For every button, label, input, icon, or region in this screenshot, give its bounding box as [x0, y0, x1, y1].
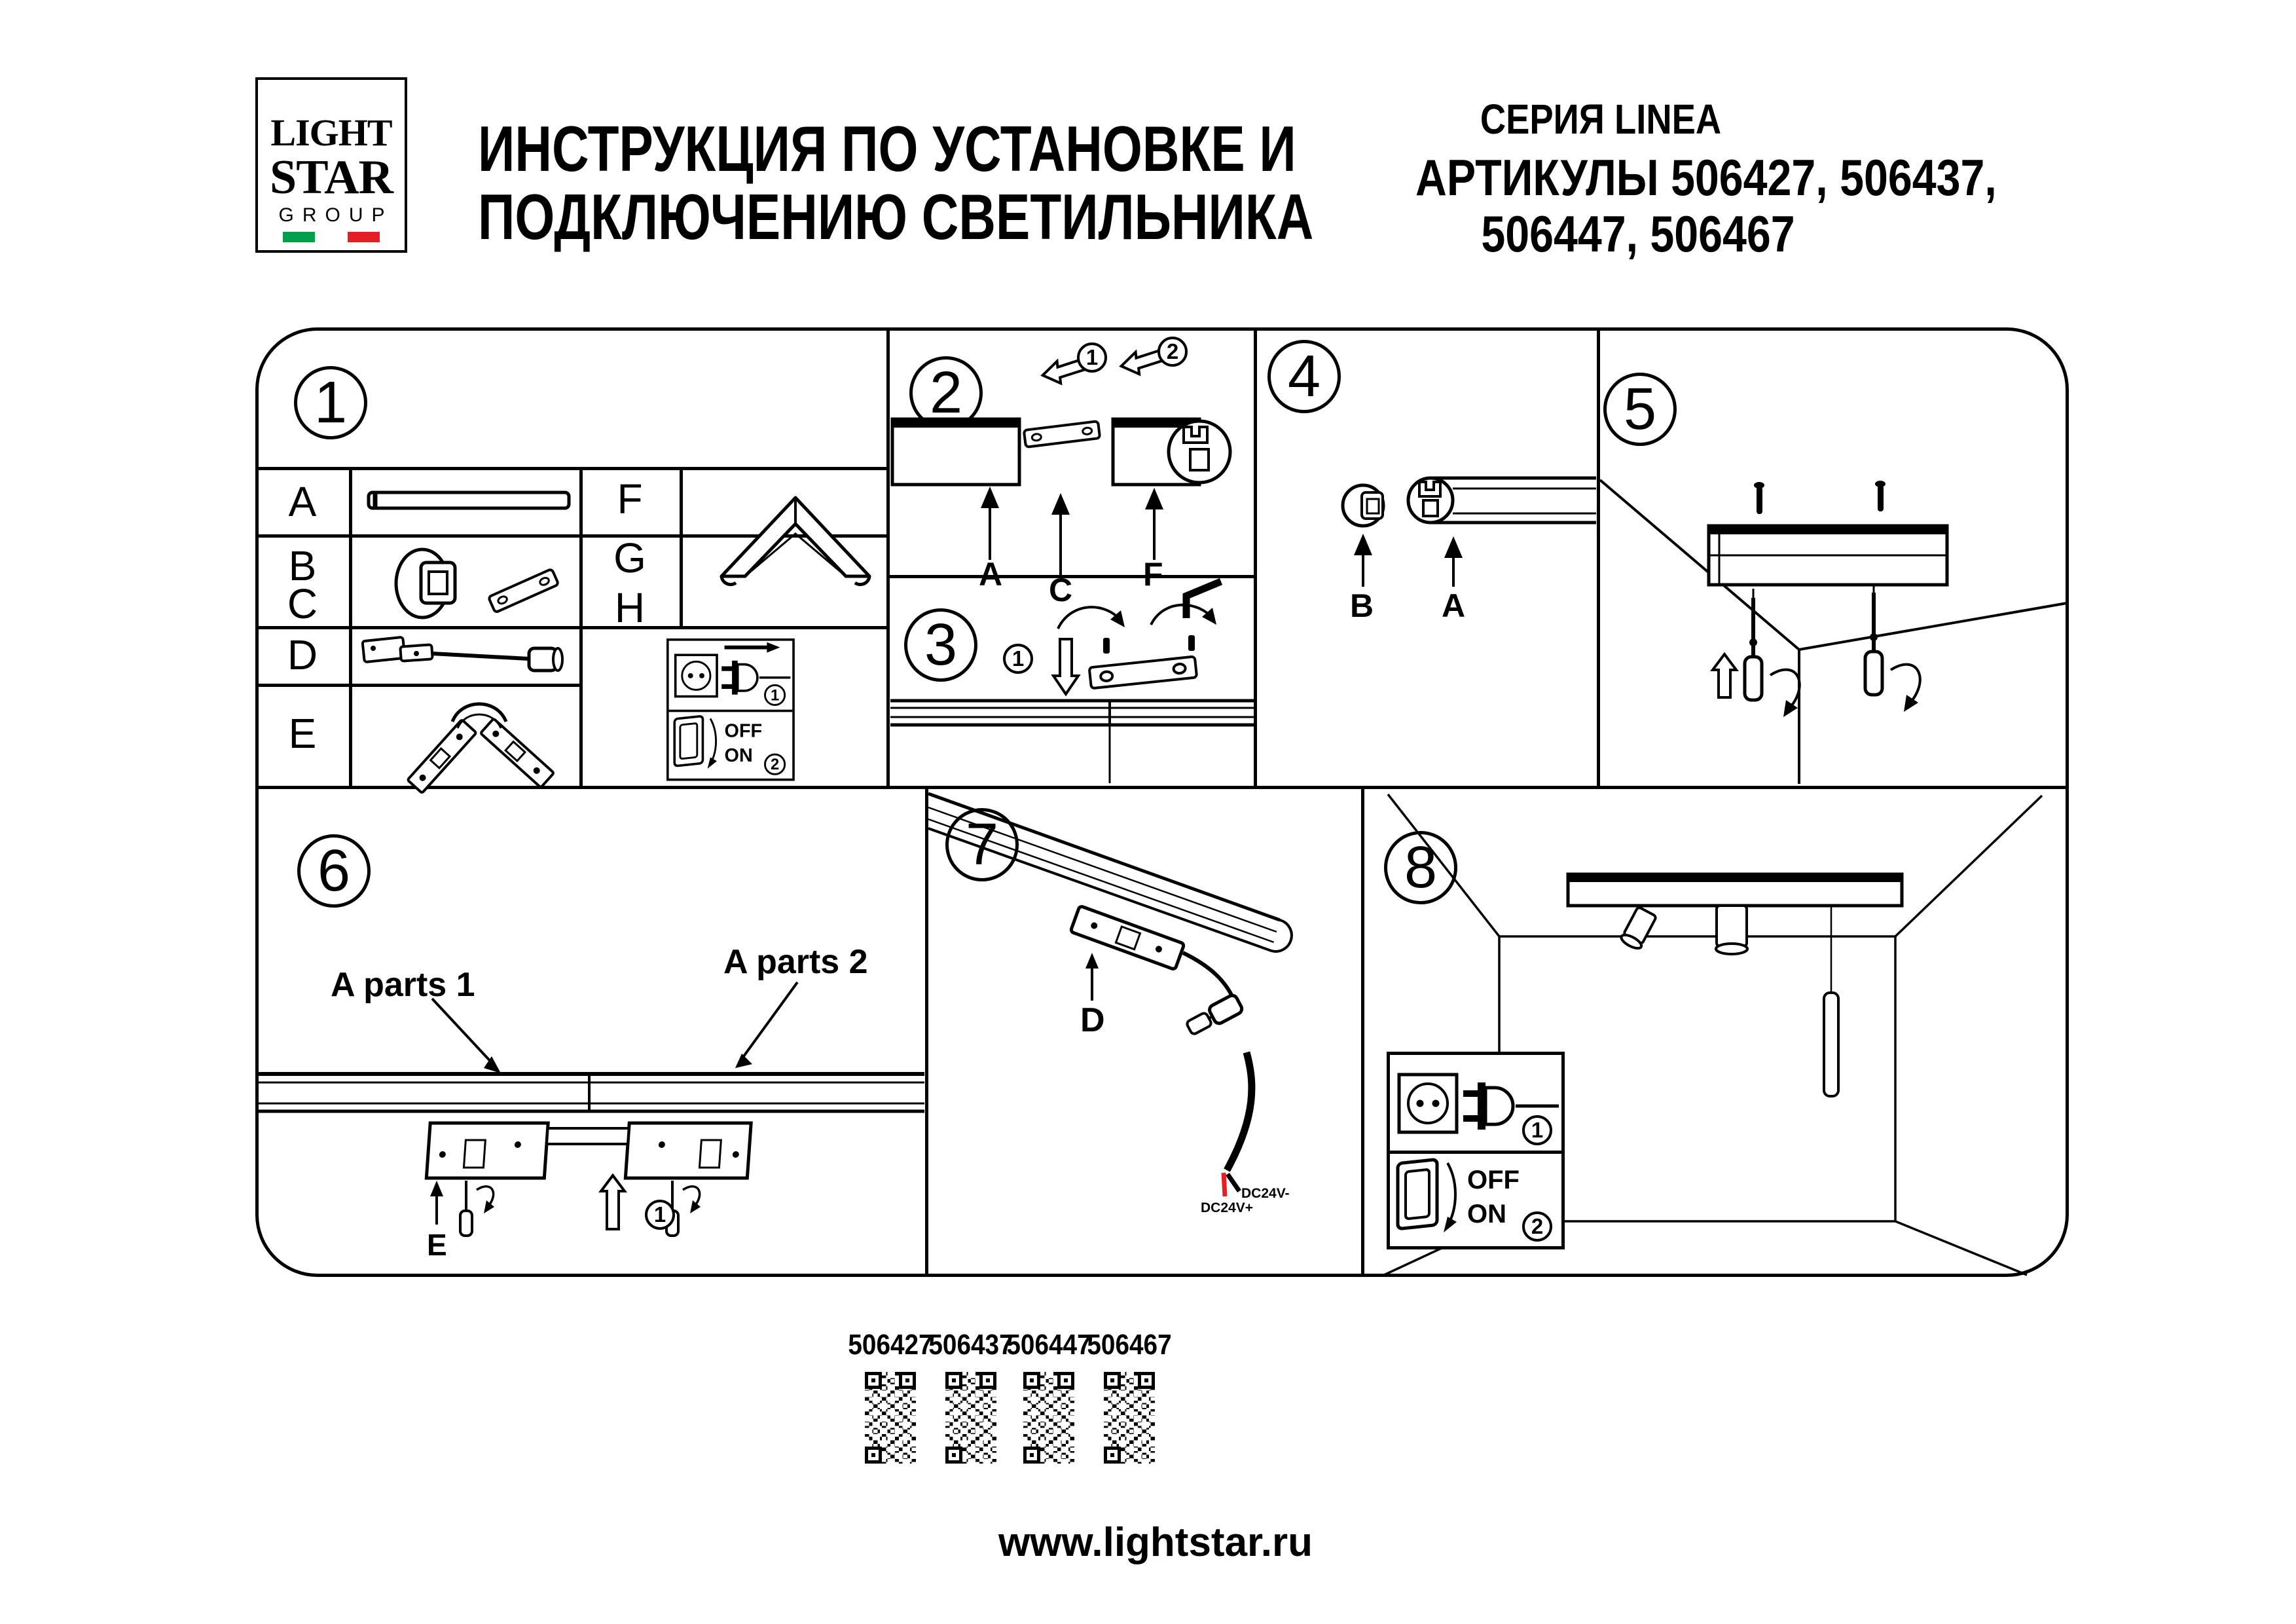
- substep-number: 2: [771, 756, 779, 773]
- series-label: СЕРИЯ LINEA: [1406, 98, 1796, 140]
- qr-code: [1104, 1372, 1155, 1464]
- articles-line2: 506447, 506467: [1415, 208, 1861, 259]
- step-7-power-feed-drawing: [928, 788, 1360, 1275]
- substep-number: 1: [654, 1202, 666, 1227]
- switch-off-label: OFF: [725, 720, 763, 741]
- part-letter-a: A: [289, 481, 317, 523]
- table-line: [579, 467, 583, 788]
- power-substep1-circle: 1: [764, 684, 786, 706]
- logo-light: LIGHT: [270, 114, 392, 152]
- page-title-line1: ИНСТРУКЦИЯ ПО УСТАНОВКЕ И: [478, 117, 1296, 181]
- step6-label-e: E: [427, 1230, 447, 1260]
- up-arrow-icon: [1713, 654, 1736, 697]
- step6-a-parts-1-label: A parts 1: [331, 968, 475, 1002]
- red-wire: [1224, 1173, 1225, 1196]
- switch-on-step: OFF ON 2: [669, 712, 793, 779]
- rocker-switch-icon: [674, 716, 702, 766]
- qr-article-label: 506437: [928, 1331, 1013, 1359]
- substep-number: 2: [1531, 1214, 1543, 1239]
- part-letter-f: F: [617, 478, 642, 520]
- website-link: www.lightstar.ru: [920, 1522, 1391, 1563]
- instruction-sheet: LIGHT STAR GROUP ИНСТРУКЦИЯ ПО УСТАНОВКЕ…: [0, 0, 2296, 1624]
- divider: [886, 329, 890, 788]
- power-connection-box: 1 OFF ON 2: [666, 638, 795, 781]
- qr-code: [945, 1372, 996, 1464]
- table-line: [680, 467, 683, 629]
- step-1-circle: 1: [294, 366, 367, 439]
- part-letter-c: C: [287, 583, 318, 625]
- qr-code: [865, 1372, 916, 1464]
- step-3-screwing-drawing: [890, 576, 1254, 786]
- step7-label-d: D: [1080, 1003, 1105, 1037]
- rocker-switch-icon: [1398, 1159, 1437, 1228]
- step-4-number: 4: [1288, 343, 1321, 411]
- switch-off-label: OFF: [1467, 1166, 1520, 1195]
- step-1-number: 1: [314, 369, 347, 437]
- articles-line1: АРТИКУЛЫ 506427, 506437,: [1415, 152, 1861, 203]
- qr-code: [1023, 1372, 1074, 1464]
- cable-connector-icon: [1184, 993, 1243, 1037]
- step3-substep1-circle: 1: [1003, 644, 1033, 674]
- screwdriver-icon: [1745, 589, 1800, 717]
- step6-substep1-circle: 1: [645, 1200, 675, 1230]
- qr-article-label: 506427: [848, 1331, 932, 1359]
- substep-number: 1: [1531, 1118, 1543, 1143]
- power-substep2-circle: 2: [764, 754, 786, 775]
- step7-wire-positive-label: DC24V+: [1201, 1201, 1253, 1215]
- flag-green: [283, 232, 315, 242]
- part-bc-cap-strip-drawing: [383, 540, 566, 625]
- power-substep2-circle: 2: [1522, 1211, 1552, 1242]
- part-e-corner-connector-drawing: [390, 688, 570, 783]
- switch-on-label: ON: [1467, 1200, 1506, 1229]
- part-a-track-drawing: [365, 483, 574, 520]
- step-4-circle: 4: [1267, 340, 1341, 413]
- switch-on-label: ON: [725, 745, 753, 766]
- qr-article-label: 506447: [1006, 1331, 1091, 1359]
- italian-flag-bar: [283, 232, 380, 242]
- step-2-joining-drawing: [890, 334, 1254, 589]
- up-arrow-icon: [601, 1175, 625, 1229]
- step2-substep1-circle: 1: [1077, 342, 1107, 373]
- power-connection-box: 1 OFF ON 2: [1387, 1052, 1565, 1249]
- pendant-light-icon: [1824, 906, 1838, 1096]
- part-letter-d: D: [287, 634, 318, 676]
- part-letter-g: G: [613, 537, 646, 579]
- screwdriver-icon: [1865, 583, 1920, 712]
- step2-substep2-circle: 2: [1157, 337, 1188, 367]
- cylinder-light-icon: [1716, 906, 1747, 954]
- step-6-track-joining-drawing: [257, 788, 924, 1275]
- step6-a-parts-2-label: A parts 2: [723, 945, 868, 979]
- spotlight-icon: [1619, 906, 1657, 951]
- part-f-corner-drawing: [707, 470, 884, 595]
- screwdriver-icon: [460, 1181, 494, 1236]
- part-letter-h: H: [615, 587, 645, 629]
- substep-number: 1: [1012, 646, 1024, 671]
- flag-red: [348, 232, 380, 242]
- plug-in-step: 1: [669, 641, 793, 712]
- substep-number: 1: [1086, 345, 1098, 370]
- step-5-ceiling-mounting-drawing: [1600, 329, 2067, 784]
- qr-article-label: 506467: [1087, 1331, 1171, 1359]
- flag-white: [315, 232, 347, 242]
- lightstar-logo: LIGHT STAR GROUP: [255, 77, 407, 253]
- substep-number: 1: [771, 686, 779, 704]
- power-substep1-circle: 1: [1522, 1115, 1552, 1145]
- table-line: [349, 467, 352, 788]
- plug-in-step: 1: [1390, 1055, 1561, 1154]
- step4-label-b: B: [1350, 589, 1374, 622]
- black-wire: [1228, 1174, 1239, 1191]
- step4-label-a: A: [1442, 589, 1465, 622]
- substep-number: 2: [1167, 339, 1178, 364]
- switch-on-step: OFF ON 2: [1390, 1154, 1561, 1246]
- part-d-connector-drawing: [360, 629, 586, 688]
- logo-star: STAR: [270, 153, 393, 202]
- logo-group: GROUP: [278, 206, 393, 225]
- part-letter-e: E: [289, 712, 317, 754]
- page-title-line2: ПОДКЛЮЧЕНИЮ СВЕТИЛЬНИКА: [478, 185, 1313, 249]
- step7-wire-negative-label: DC24V-: [1241, 1187, 1290, 1200]
- step-4-endcap-drawing: [1257, 458, 1596, 616]
